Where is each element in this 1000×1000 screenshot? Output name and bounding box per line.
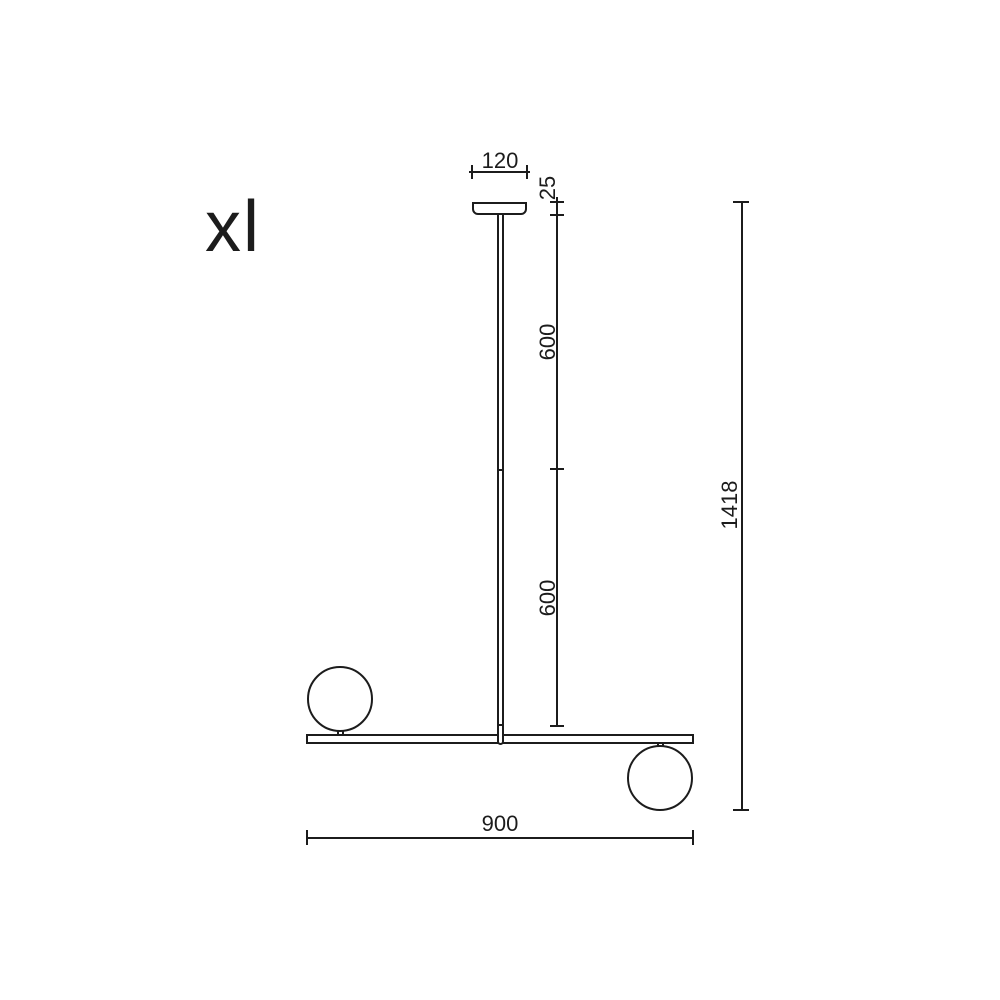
dim-line-bar-length <box>306 837 694 839</box>
dim-label-canopy-width: 120 <box>470 149 530 173</box>
rod-end-cap <box>497 724 504 745</box>
dim-label-rod-lower: 600 <box>536 568 560 628</box>
dim-tick <box>306 830 308 845</box>
dim-label-canopy-drop: 25 <box>536 158 560 218</box>
suspension-rod <box>497 210 504 726</box>
technical-drawing-canvas: xl 120 25 600 600 1418 900 <box>0 0 1000 1000</box>
dim-tick <box>550 468 564 470</box>
dim-line-rod-chain <box>556 197 558 727</box>
dim-label-rod-upper: 600 <box>536 312 560 372</box>
dim-tick <box>733 201 749 203</box>
dim-tick <box>550 725 564 727</box>
rod-joint <box>497 469 504 471</box>
glass-globe-left <box>307 666 373 732</box>
dim-tick <box>692 830 694 845</box>
dim-label-bar-length: 900 <box>470 812 530 836</box>
ceiling-canopy <box>472 202 527 215</box>
dim-tick <box>733 809 749 811</box>
glass-globe-right <box>627 745 693 811</box>
dim-label-overall-height: 1418 <box>718 465 742 545</box>
variant-label: xl <box>205 191 261 263</box>
